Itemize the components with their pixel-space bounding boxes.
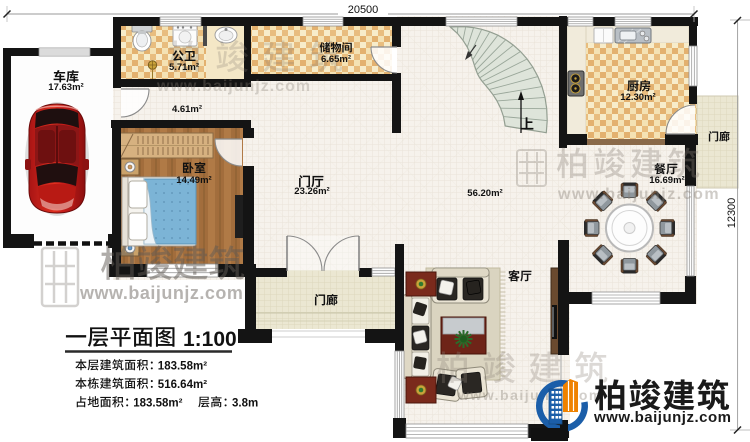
svg-text:56.20m²: 56.20m² <box>467 188 502 199</box>
svg-text:20500: 20500 <box>348 4 379 16</box>
svg-text:www.baijunjz.com: www.baijunjz.com <box>156 78 311 95</box>
svg-text:183.58m²: 183.58m² <box>133 398 182 410</box>
svg-text:23.26m²: 23.26m² <box>294 186 329 197</box>
svg-text:17.63m²: 17.63m² <box>48 82 83 93</box>
svg-text:6.65m²: 6.65m² <box>321 54 351 65</box>
svg-text:www.baijunjz.com: www.baijunjz.com <box>557 186 720 203</box>
svg-text:1:100: 1:100 <box>183 328 237 351</box>
svg-text:12300: 12300 <box>726 198 738 229</box>
svg-text:16.69m²: 16.69m² <box>649 175 684 186</box>
svg-text:14.49m²: 14.49m² <box>176 175 211 186</box>
svg-text:5.71m²: 5.71m² <box>169 62 199 73</box>
svg-text:3.8m: 3.8m <box>232 398 258 410</box>
svg-text:www.baijunjz.com: www.baijunjz.com <box>593 409 731 426</box>
svg-text:www.baijunjz.com: www.baijunjz.com <box>79 283 243 303</box>
svg-text:12.30m²: 12.30m² <box>620 92 655 103</box>
svg-text:183.58m²: 183.58m² <box>158 361 207 373</box>
svg-text:4.61m²: 4.61m² <box>172 104 202 115</box>
svg-text:516.64m²: 516.64m² <box>158 379 207 391</box>
svg-text:www.baijunjz.com: www.baijunjz.com <box>457 387 603 403</box>
